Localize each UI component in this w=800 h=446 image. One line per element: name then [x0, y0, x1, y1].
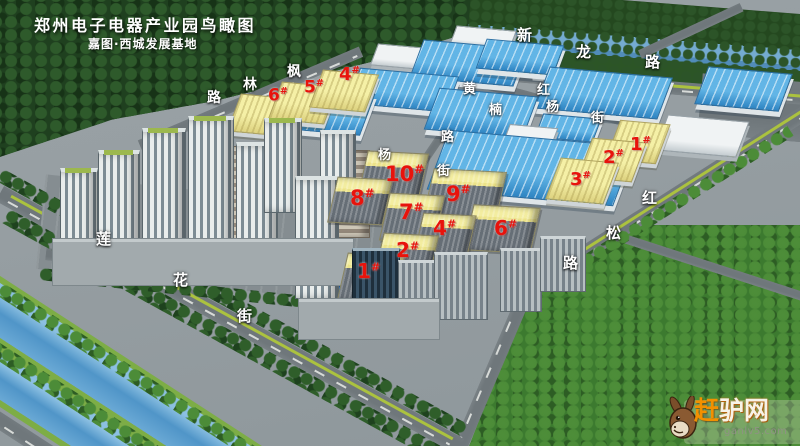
watermark-brand: 赶驴网 — [694, 398, 769, 423]
midrise-building — [500, 248, 542, 312]
highrise-tower — [142, 128, 186, 251]
building-number-text: 4 — [339, 64, 352, 85]
road-label-char: 红 — [642, 191, 657, 206]
road-label-char: 路 — [645, 55, 660, 70]
building-number-hash: # — [371, 260, 380, 273]
building-number-hash: # — [508, 217, 517, 230]
building-number-hash: # — [461, 182, 471, 196]
building-number-text: 7 — [399, 200, 414, 224]
road-label-char: 红 — [537, 84, 550, 97]
road-label-char: 路 — [207, 91, 221, 105]
building-number: 7# — [399, 202, 423, 223]
building-number-text: 4 — [433, 216, 447, 240]
building-number: 5# — [304, 79, 324, 97]
road-label-char: 新 — [517, 28, 532, 43]
road-label-char: 路 — [441, 131, 454, 144]
watermark: 赶驴网 ganlv5.com — [650, 390, 800, 444]
road-label-char: 街 — [437, 165, 450, 178]
page-title: 郑州电子电器产业园鸟瞰图 — [34, 12, 256, 36]
podium-block — [298, 298, 440, 340]
road-label-char: 街 — [237, 309, 252, 324]
building-number-hash: # — [414, 162, 424, 176]
building-number-text: 3 — [570, 169, 583, 190]
watermark-brand-chars: 驴网 — [719, 396, 769, 425]
building-number-hash: # — [616, 148, 624, 159]
building-number: 3# — [570, 171, 591, 189]
watermark-brand-char: 赶 — [694, 396, 719, 425]
building-number-text: 9 — [446, 182, 461, 206]
aerial-map-canvas: 新 龙 路 枫 林 路 红 杨 街 黄 楠 路 杨 街 红 松 路 莲 花 街 … — [0, 0, 800, 446]
road-label-char: 楠 — [489, 104, 502, 117]
building-number-hash: # — [316, 78, 324, 89]
road-label-char: 黄 — [463, 83, 476, 96]
building-number-hash: # — [280, 86, 288, 97]
building-number: 1# — [630, 136, 651, 154]
road-label-char: 林 — [243, 78, 257, 92]
building-number: 2# — [603, 149, 624, 167]
building-number: 6# — [268, 87, 288, 105]
watermark-domain: ganlv5.com — [724, 426, 787, 437]
office-building — [654, 114, 749, 157]
factory-building — [694, 66, 793, 111]
road-label-char: 莲 — [96, 232, 111, 247]
building-number-text: 1 — [630, 134, 643, 155]
road-label-char: 杨 — [378, 149, 391, 162]
highrise-tower — [188, 116, 234, 249]
building-number: 9# — [446, 184, 470, 205]
building-number-text: 2 — [603, 147, 616, 168]
building-number: 2# — [396, 240, 419, 260]
building-number-hash: # — [352, 65, 360, 76]
building-number-hash: # — [414, 200, 424, 214]
building-number-text: 6 — [268, 86, 280, 106]
page-subtitle: 嘉图·西城发展基地 — [88, 35, 198, 52]
road-label-char: 街 — [591, 112, 604, 125]
road-label-char: 路 — [563, 256, 578, 271]
building-number: 4# — [433, 218, 456, 238]
road-label-char: 杨 — [546, 101, 559, 114]
road-label-char: 松 — [606, 226, 621, 241]
building-number-text: 1 — [357, 259, 371, 283]
building-number: 6# — [494, 218, 517, 238]
midrise-building — [434, 252, 488, 320]
road-label-char: 花 — [173, 273, 188, 288]
building-number-hash: # — [583, 170, 591, 181]
building-number-text: 2 — [396, 238, 410, 262]
building-number: 8# — [350, 188, 374, 209]
building-number: 4# — [339, 66, 360, 84]
building-number: 1# — [357, 261, 380, 281]
building-number-text: 6 — [494, 216, 508, 240]
building-number-hash: # — [643, 135, 651, 146]
building-number-text: 10 — [385, 162, 414, 186]
building-number-hash: # — [365, 186, 375, 200]
building-number-text: 8 — [350, 186, 365, 210]
building-number: 10# — [385, 164, 424, 185]
building-number-text: 5 — [304, 78, 316, 98]
building-number-hash: # — [410, 239, 419, 252]
road-label-char: 龙 — [576, 45, 591, 60]
road-label-char: 枫 — [287, 65, 301, 79]
building-number-hash: # — [447, 217, 456, 230]
